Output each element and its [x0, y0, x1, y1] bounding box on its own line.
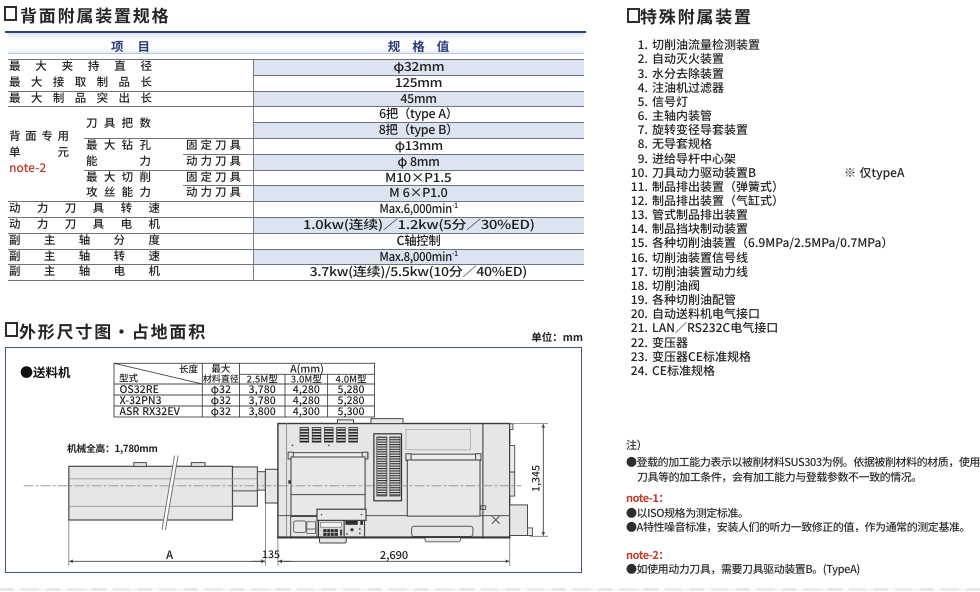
svg-text:ASR RX32EV: ASR RX32EV	[120, 404, 181, 419]
svg-text:5,300: 5,300	[337, 404, 364, 419]
svg-text:135: 135	[262, 547, 280, 562]
svg-text:4,300: 4,300	[293, 404, 320, 419]
svg-text:3,800: 3,800	[249, 404, 276, 419]
svg-text:A: A	[166, 547, 174, 563]
svg-text:2,690: 2,690	[380, 547, 408, 563]
svg-text:长度: 长度	[179, 362, 199, 376]
svg-text:1,345: 1,345	[529, 465, 544, 492]
svg-text:φ32: φ32	[211, 404, 231, 419]
